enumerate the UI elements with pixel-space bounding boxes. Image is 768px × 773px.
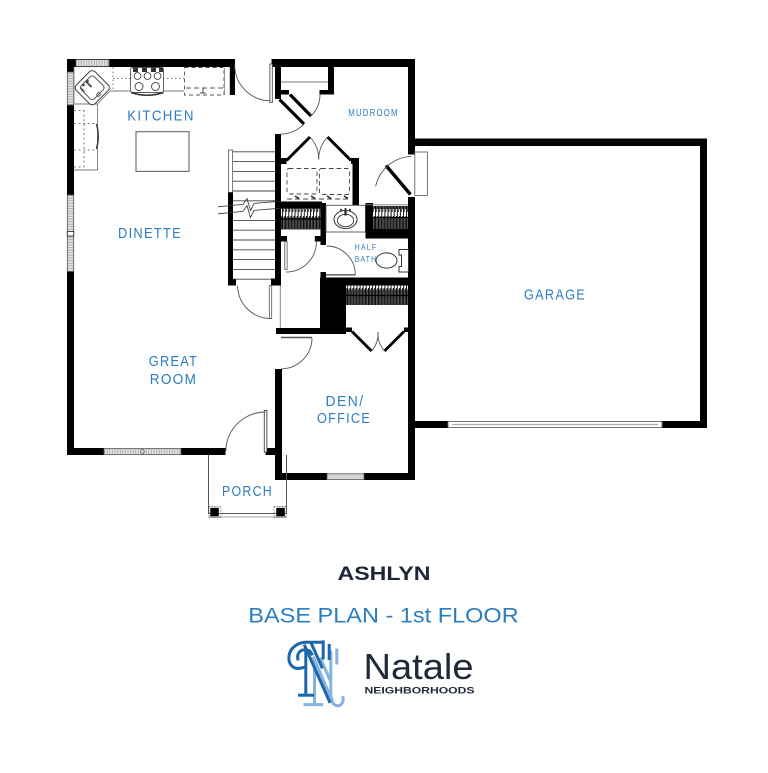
- svg-text:PORCH: PORCH: [222, 484, 273, 500]
- svg-text:GARAGE: GARAGE: [524, 287, 586, 304]
- svg-text:BATH: BATH: [355, 254, 378, 264]
- svg-text:DINETTE: DINETTE: [118, 225, 182, 242]
- svg-text:DEN/: DEN/: [326, 393, 365, 410]
- svg-text:GREAT: GREAT: [149, 353, 199, 370]
- svg-text:MUDROOM: MUDROOM: [348, 108, 399, 119]
- svg-text:ASHLYN: ASHLYN: [338, 564, 431, 585]
- svg-text:HALF: HALF: [355, 242, 378, 252]
- svg-text:Natale: Natale: [364, 646, 474, 687]
- svg-text:NEIGHBORHOODS: NEIGHBORHOODS: [365, 686, 475, 696]
- svg-text:KITCHEN: KITCHEN: [127, 108, 195, 125]
- svg-text:ROOM: ROOM: [150, 371, 198, 388]
- svg-text:OFFICE: OFFICE: [317, 410, 371, 427]
- svg-text:BASE PLAN - 1st FLOOR: BASE PLAN - 1st FLOOR: [248, 605, 518, 628]
